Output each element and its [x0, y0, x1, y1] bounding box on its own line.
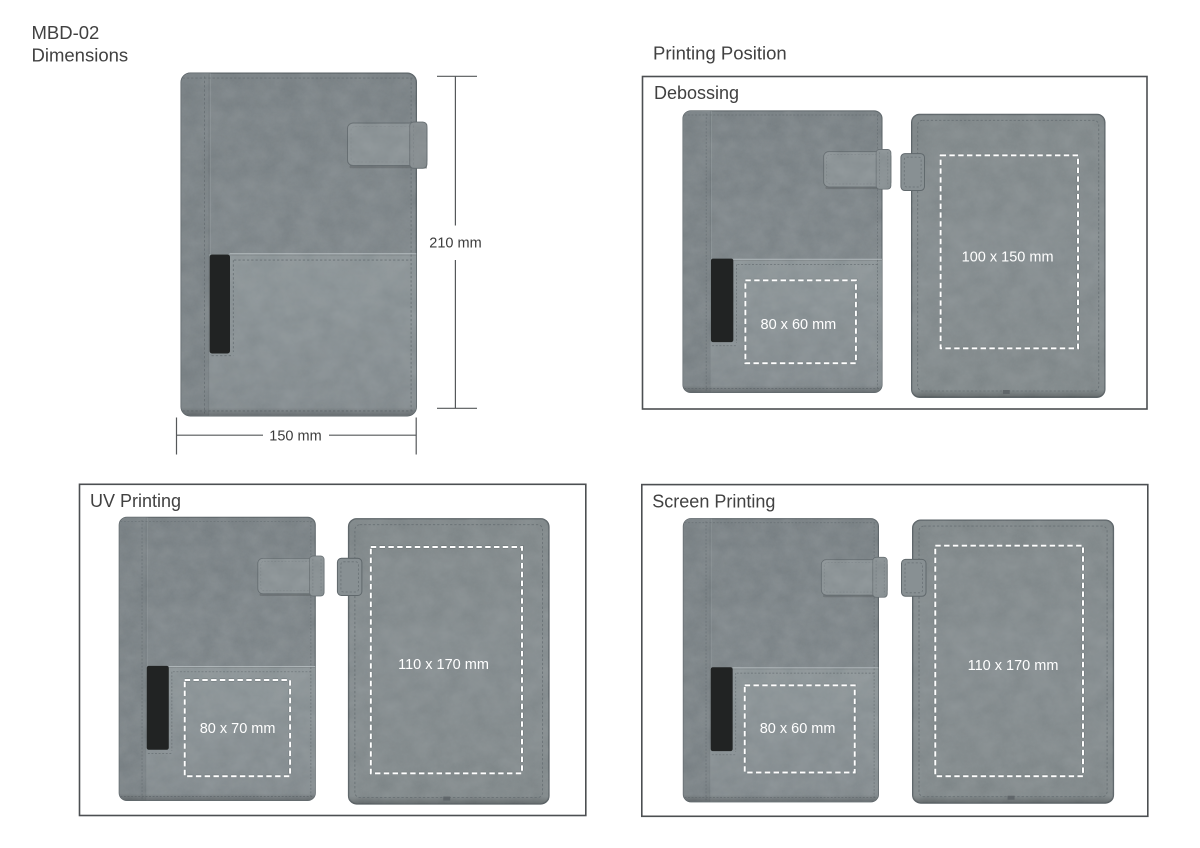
svg-text:Dimensions: Dimensions — [32, 44, 129, 65]
svg-text:110 x 170 mm: 110 x 170 mm — [968, 658, 1059, 674]
svg-text:Printing Position: Printing Position — [653, 42, 787, 63]
svg-text:110 x 170 mm: 110 x 170 mm — [398, 657, 489, 673]
svg-text:150 mm: 150 mm — [269, 428, 321, 444]
svg-text:210 mm: 210 mm — [429, 236, 481, 252]
svg-text:Screen Printing: Screen Printing — [652, 492, 775, 512]
svg-text:80 x 60 mm: 80 x 60 mm — [760, 721, 836, 737]
svg-text:80 x 60 mm: 80 x 60 mm — [761, 317, 837, 333]
svg-text:MBD-02: MBD-02 — [32, 22, 100, 43]
svg-text:UV Printing: UV Printing — [90, 491, 181, 511]
svg-text:Debossing: Debossing — [654, 83, 739, 103]
svg-text:100 x 150 mm: 100 x 150 mm — [962, 250, 1054, 266]
svg-text:80 x 70 mm: 80 x 70 mm — [200, 721, 276, 737]
